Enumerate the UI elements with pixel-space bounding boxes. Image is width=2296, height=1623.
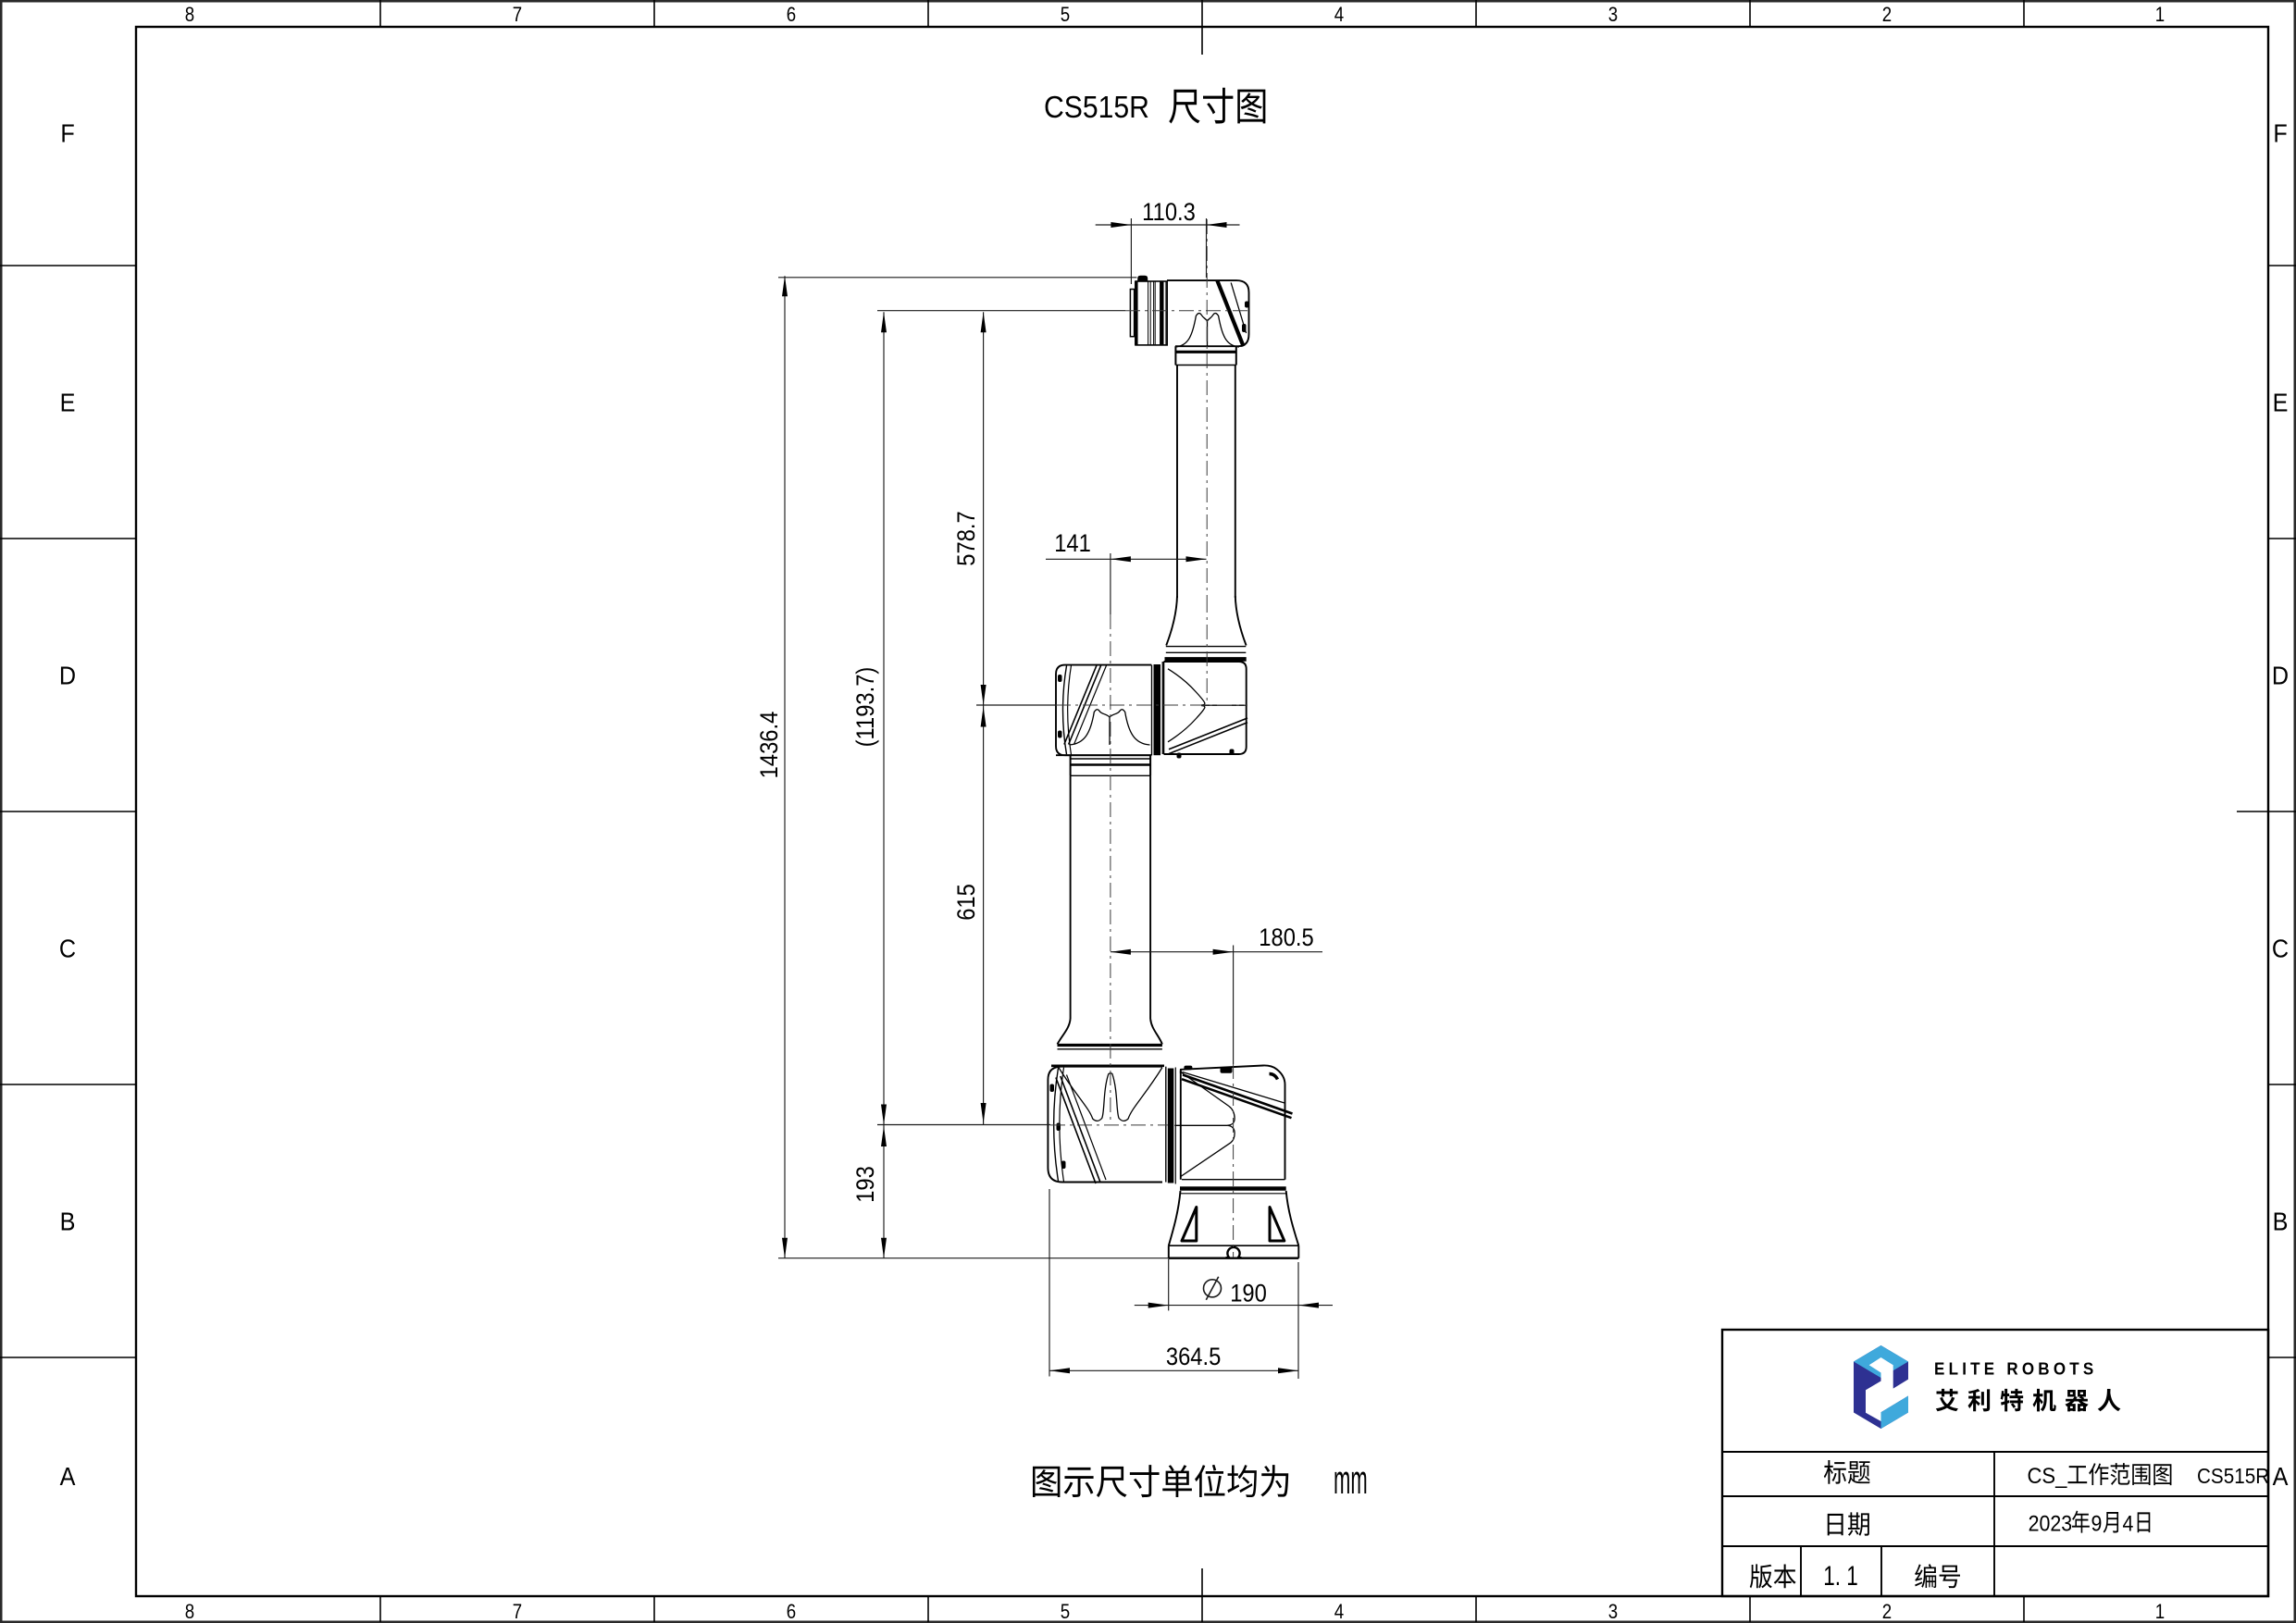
svg-text:1: 1 [2155,5,2165,27]
svg-text:1436.4: 1436.4 [756,712,784,779]
svg-text:364.5: 364.5 [1166,1344,1221,1371]
svg-text:4: 4 [1334,1602,1344,1623]
svg-text:4: 4 [1334,5,1344,27]
svg-text:190: 190 [1230,1280,1267,1307]
svg-text:4: 4 [2123,1510,2134,1536]
svg-text:6: 6 [787,5,796,27]
svg-text:2: 2 [1882,5,1892,27]
svg-text:CS515R: CS515R [1044,90,1149,125]
svg-text:B: B [60,1207,76,1236]
svg-text:6: 6 [787,1602,796,1623]
svg-text:615: 615 [953,884,981,921]
svg-text:mm: mm [1334,1458,1368,1503]
svg-text:8: 8 [185,1602,194,1623]
svg-text:E: E [60,388,76,417]
svg-text:578.7: 578.7 [953,511,981,565]
svg-text:F: F [60,118,74,148]
svg-text:3: 3 [1608,1602,1618,1623]
svg-text:D: D [2272,661,2289,690]
svg-text:193: 193 [852,1166,880,1203]
svg-text:110.3: 110.3 [1142,199,1196,227]
svg-text:A: A [2273,1462,2289,1492]
svg-text:1. 1: 1. 1 [1823,1560,1858,1592]
svg-text:9: 9 [2091,1510,2103,1536]
svg-text:5: 5 [1061,5,1070,27]
svg-text:7: 7 [513,5,522,27]
svg-text:C: C [59,934,76,963]
svg-text:A: A [60,1462,76,1492]
svg-text:CS_: CS_ [2028,1463,2068,1488]
svg-text:8: 8 [185,5,194,27]
svg-text:C: C [2272,934,2289,963]
svg-text:2: 2 [1882,1602,1892,1623]
svg-text:141: 141 [1054,530,1091,558]
svg-text:180.5: 180.5 [1259,924,1313,952]
svg-text:CS515R: CS515R [2197,1464,2269,1489]
svg-text:2023: 2023 [2029,1510,2073,1536]
svg-text:5: 5 [1061,1602,1070,1623]
svg-text:3: 3 [1608,5,1618,27]
svg-text:B: B [2273,1207,2289,1236]
svg-text:1: 1 [2155,1602,2165,1623]
svg-text:D: D [59,661,76,690]
svg-text:7: 7 [513,1602,522,1623]
svg-text:(1193.7): (1193.7) [852,667,880,748]
svg-text:F: F [2273,118,2287,148]
svg-text:E: E [2273,388,2289,417]
svg-text:ELITE ROBOTS: ELITE ROBOTS [1934,1359,2097,1379]
